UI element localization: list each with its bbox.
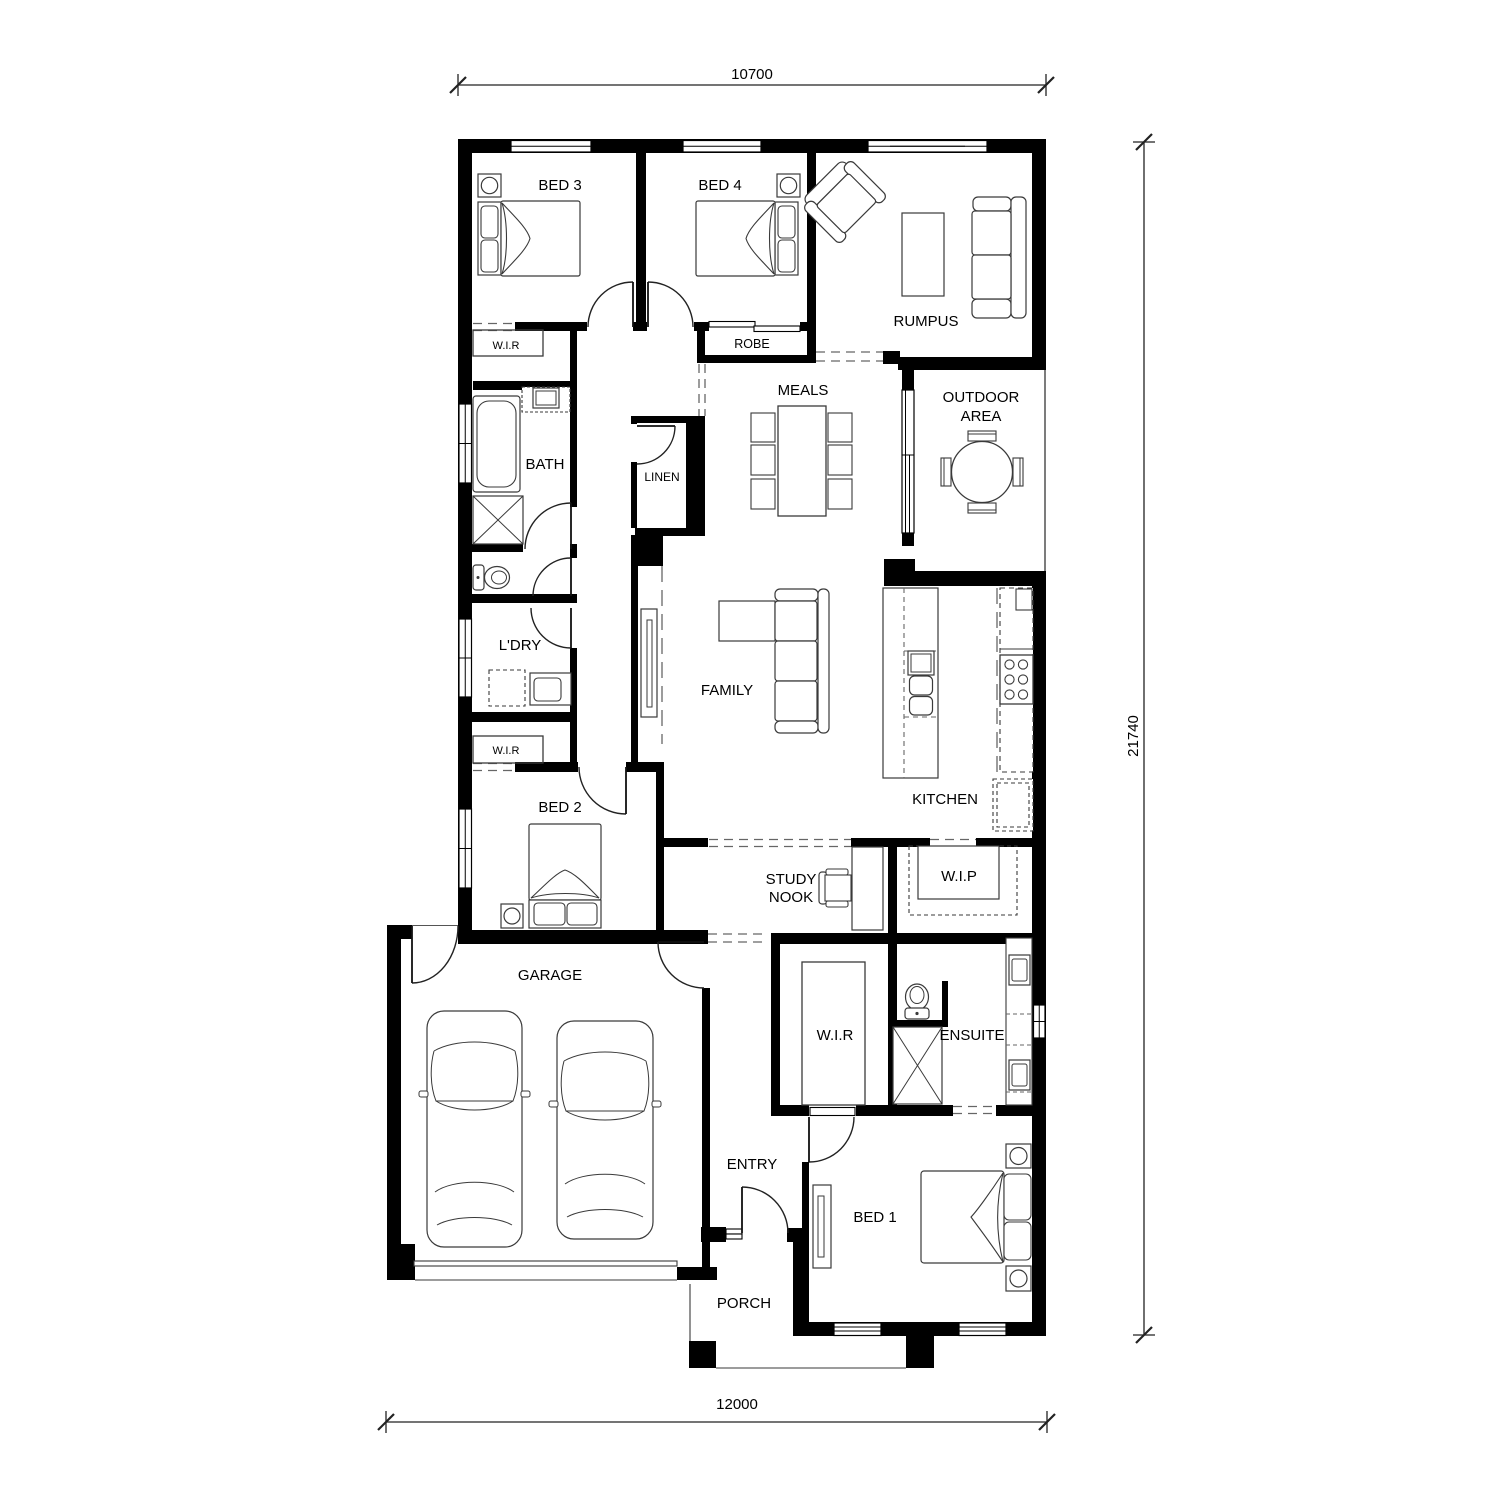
svg-text:W.I.P: W.I.P xyxy=(941,868,977,885)
svg-text:PORCH: PORCH xyxy=(717,1295,771,1312)
svg-text:21740: 21740 xyxy=(1125,715,1142,757)
svg-text:GARAGE: GARAGE xyxy=(518,967,582,984)
svg-text:ENSUITE: ENSUITE xyxy=(939,1027,1004,1044)
svg-text:W.I.R: W.I.R xyxy=(817,1027,854,1044)
svg-text:OUTDOOR: OUTDOOR xyxy=(943,389,1020,406)
svg-text:KITCHEN: KITCHEN xyxy=(912,791,978,808)
svg-text:12000: 12000 xyxy=(716,1396,758,1413)
svg-text:LINEN: LINEN xyxy=(644,470,679,484)
svg-text:STUDY: STUDY xyxy=(766,871,817,888)
svg-text:MEALS: MEALS xyxy=(778,382,829,399)
svg-text:BED 4: BED 4 xyxy=(698,177,741,194)
svg-text:W.I.R: W.I.R xyxy=(493,340,520,352)
svg-text:BED 3: BED 3 xyxy=(538,177,581,194)
svg-text:RUMPUS: RUMPUS xyxy=(893,313,958,330)
svg-text:AREA: AREA xyxy=(961,408,1002,425)
svg-text:L'DRY: L'DRY xyxy=(499,637,542,654)
svg-text:W.I.R: W.I.R xyxy=(493,745,520,757)
svg-text:BED 1: BED 1 xyxy=(853,1209,896,1226)
svg-text:FAMILY: FAMILY xyxy=(701,682,753,699)
svg-text:BED 2: BED 2 xyxy=(538,799,581,816)
svg-text:BATH: BATH xyxy=(526,456,565,473)
svg-text:NOOK: NOOK xyxy=(769,889,813,906)
svg-text:ROBE: ROBE xyxy=(734,337,769,351)
svg-text:ENTRY: ENTRY xyxy=(727,1156,778,1173)
svg-text:10700: 10700 xyxy=(731,66,773,83)
